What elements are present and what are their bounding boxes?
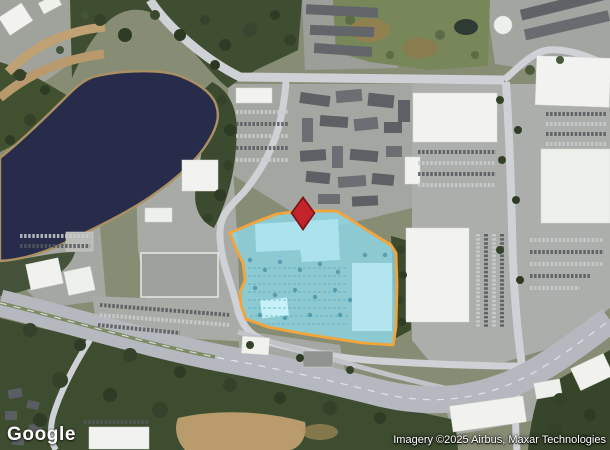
- map-attribution: Imagery ©2025 Airbus, Maxar Technologies: [393, 434, 606, 446]
- satellite-map[interactable]: Google Imagery ©2025 Airbus, Maxar Techn…: [0, 0, 610, 450]
- map-canvas[interactable]: [0, 0, 610, 450]
- google-logo[interactable]: Google: [7, 424, 76, 446]
